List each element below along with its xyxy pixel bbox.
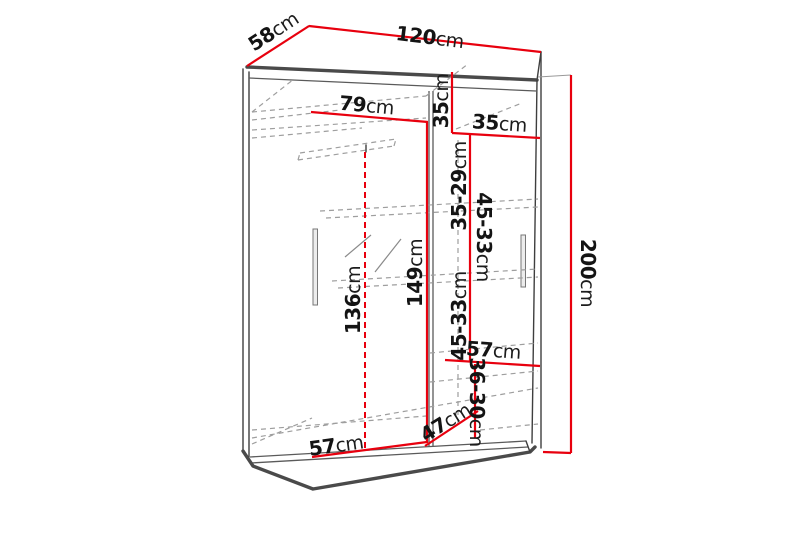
left-top-shelf-back (252, 128, 362, 138)
diagram-canvas: 58cm 120cm 79cm 35cm 35cm 35-29cm 45-33c… (0, 0, 800, 533)
label-right-column-width: 35cm (471, 109, 527, 137)
wardrobe-outline (243, 26, 541, 489)
depth-line-top-left (252, 79, 294, 112)
floor-front-line (252, 416, 426, 430)
floor-back-line (252, 388, 538, 438)
dim-tick-200-bottom (543, 452, 571, 453)
ceiling-back-line (252, 110, 340, 120)
top-front-edge (247, 67, 537, 80)
hanging-rail (298, 139, 396, 160)
label-rail-clearance-height: 136cm (341, 266, 365, 334)
label-bottom-interior-width: 57cm (307, 429, 365, 460)
label-top-shelf-height: 35cm (429, 74, 453, 129)
label-bottom-shelf-gap: 36-30cm (465, 357, 489, 446)
label-interior-width-left: 79cm (338, 91, 395, 120)
wardrobe-dimension-diagram: 58cm 120cm 79cm 35cm 35cm 35-29cm 45-33c… (0, 0, 800, 533)
base-bottom-edge (243, 447, 535, 489)
label-top-width: 120cm (395, 21, 466, 53)
floor-right-line (480, 424, 538, 430)
dim-tick-200-top (538, 75, 571, 77)
label-left-interior-height: 149cm (403, 239, 427, 307)
label-shelf-gap-upper: 35-29cm (447, 141, 471, 230)
label-total-height: 200cm (576, 239, 600, 307)
floor-depth-line (252, 418, 312, 444)
left-door-handle (313, 229, 318, 305)
right-door-handle (521, 235, 526, 287)
door-top-edge (249, 78, 536, 91)
label-shelf-gap-middle: 45-33cm (472, 192, 496, 281)
